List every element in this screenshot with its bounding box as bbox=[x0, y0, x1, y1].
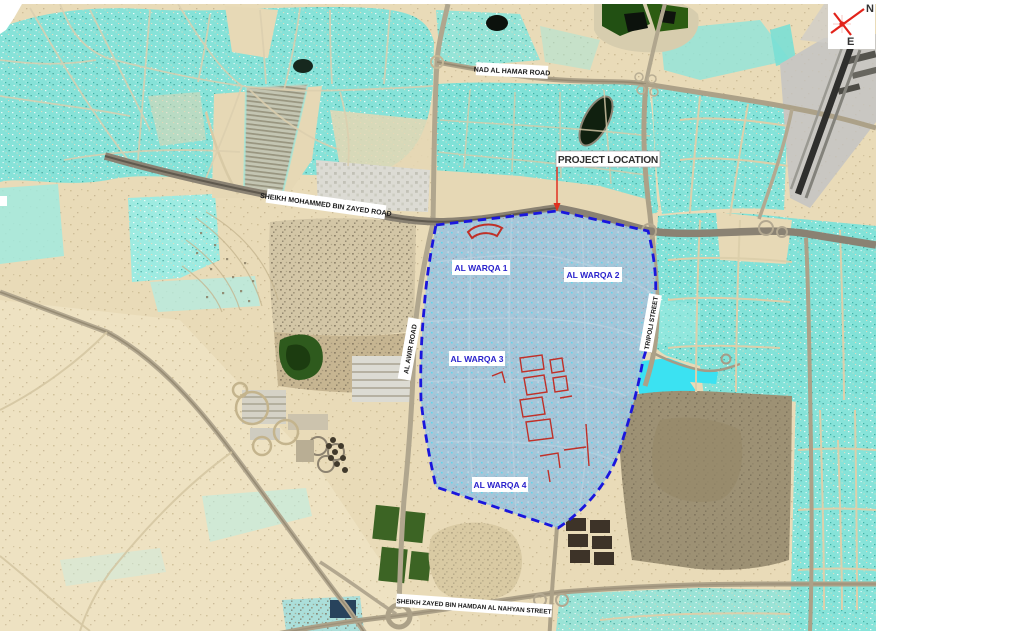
svg-text:E: E bbox=[847, 36, 854, 48]
svg-text:AL WARQA 4: AL WARQA 4 bbox=[474, 480, 527, 490]
svg-text:AL WARQA 3: AL WARQA 3 bbox=[451, 354, 504, 364]
svg-text:AL WARQA 2: AL WARQA 2 bbox=[567, 270, 620, 280]
svg-text:N: N bbox=[866, 3, 874, 15]
svg-text:AL WARQA 1: AL WARQA 1 bbox=[455, 263, 508, 273]
svg-text:PROJECT LOCATION: PROJECT LOCATION bbox=[558, 155, 658, 166]
